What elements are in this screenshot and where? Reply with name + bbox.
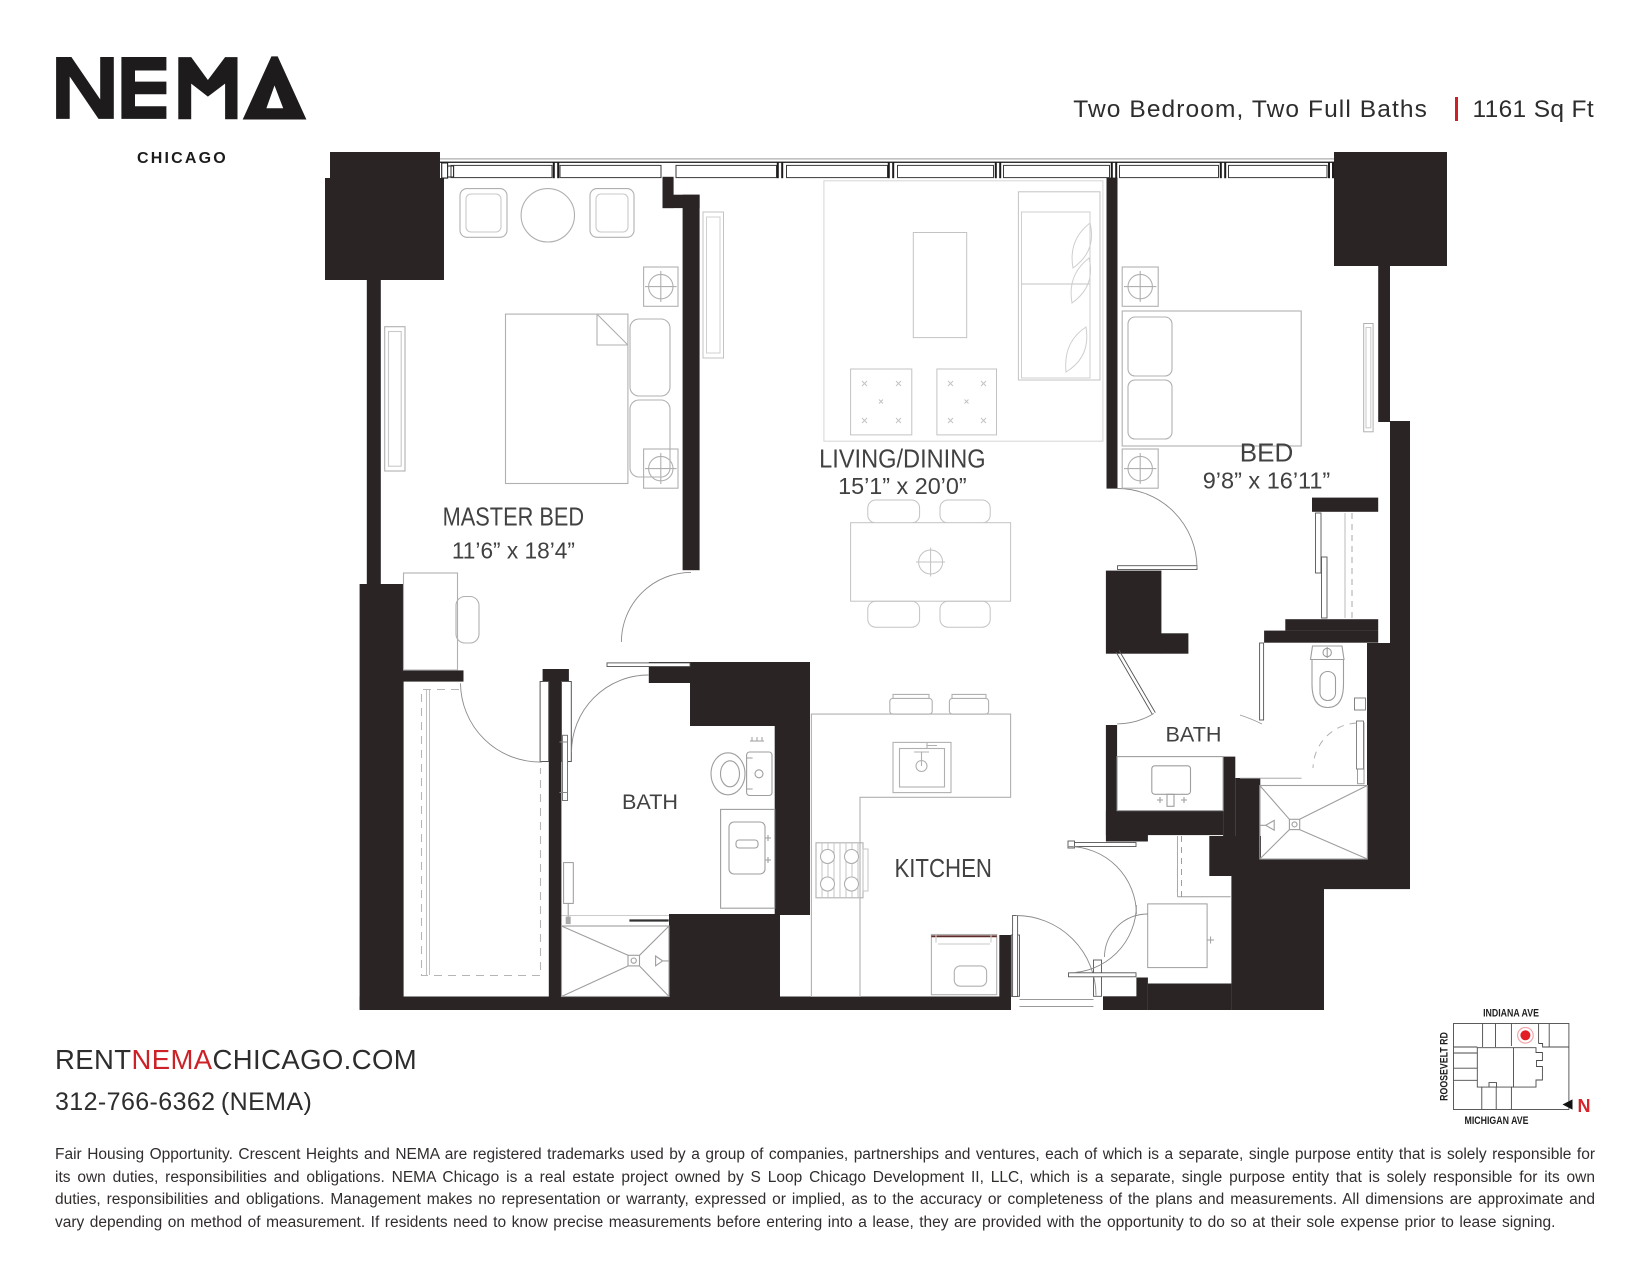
svg-text:9’8” x 16’11”: 9’8” x 16’11”	[1203, 468, 1331, 494]
svg-text:MASTER BED: MASTER BED	[443, 502, 585, 532]
svg-text:LIVING/DINING: LIVING/DINING	[819, 444, 986, 474]
svg-text:15’1” x 20’0”: 15’1” x 20’0”	[838, 473, 967, 499]
svg-text:BATH: BATH	[1166, 723, 1222, 747]
svg-text:ROOSEVELT RD: ROOSEVELT RD	[1439, 1032, 1451, 1101]
svg-text:INDIANA AVE: INDIANA AVE	[1483, 1008, 1539, 1020]
svg-text:MICHIGAN AVE: MICHIGAN AVE	[1465, 1115, 1529, 1127]
svg-text:BED: BED	[1240, 438, 1294, 468]
svg-text:BATH: BATH	[622, 790, 678, 814]
svg-text:KITCHEN: KITCHEN	[894, 853, 992, 883]
svg-text:N: N	[1578, 1096, 1591, 1116]
svg-text:11’6” x 18’4”: 11’6” x 18’4”	[452, 538, 575, 564]
